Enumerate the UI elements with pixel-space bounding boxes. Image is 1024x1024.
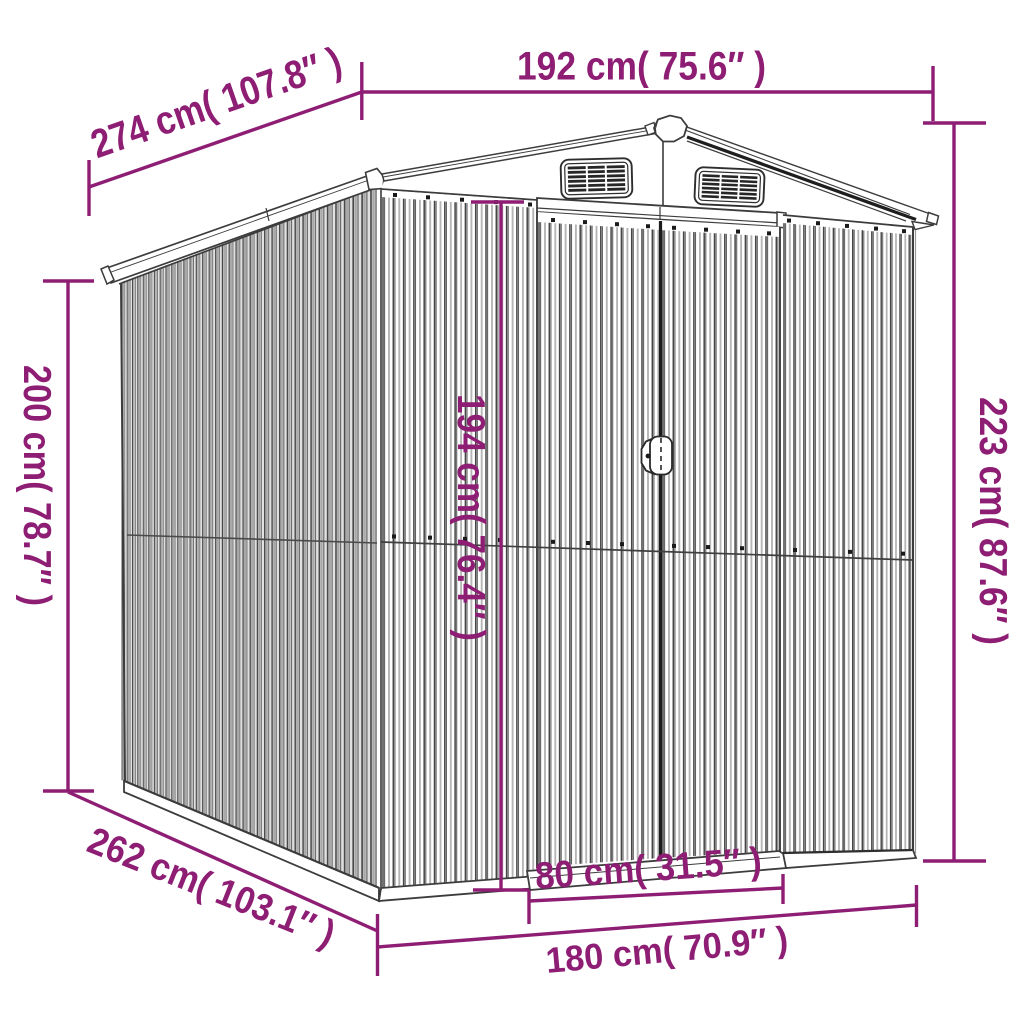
svg-text:223 cm( 87.6″ ): 223 cm( 87.6″ ) [971,397,1014,645]
svg-text:194 cm( 76.4″ ): 194 cm( 76.4″ ) [449,394,492,641]
svg-text:192 cm( 75.6″ ): 192 cm( 75.6″ ) [517,45,766,89]
svg-text:200 cm( 78.7″ ): 200 cm( 78.7″ ) [15,365,58,606]
